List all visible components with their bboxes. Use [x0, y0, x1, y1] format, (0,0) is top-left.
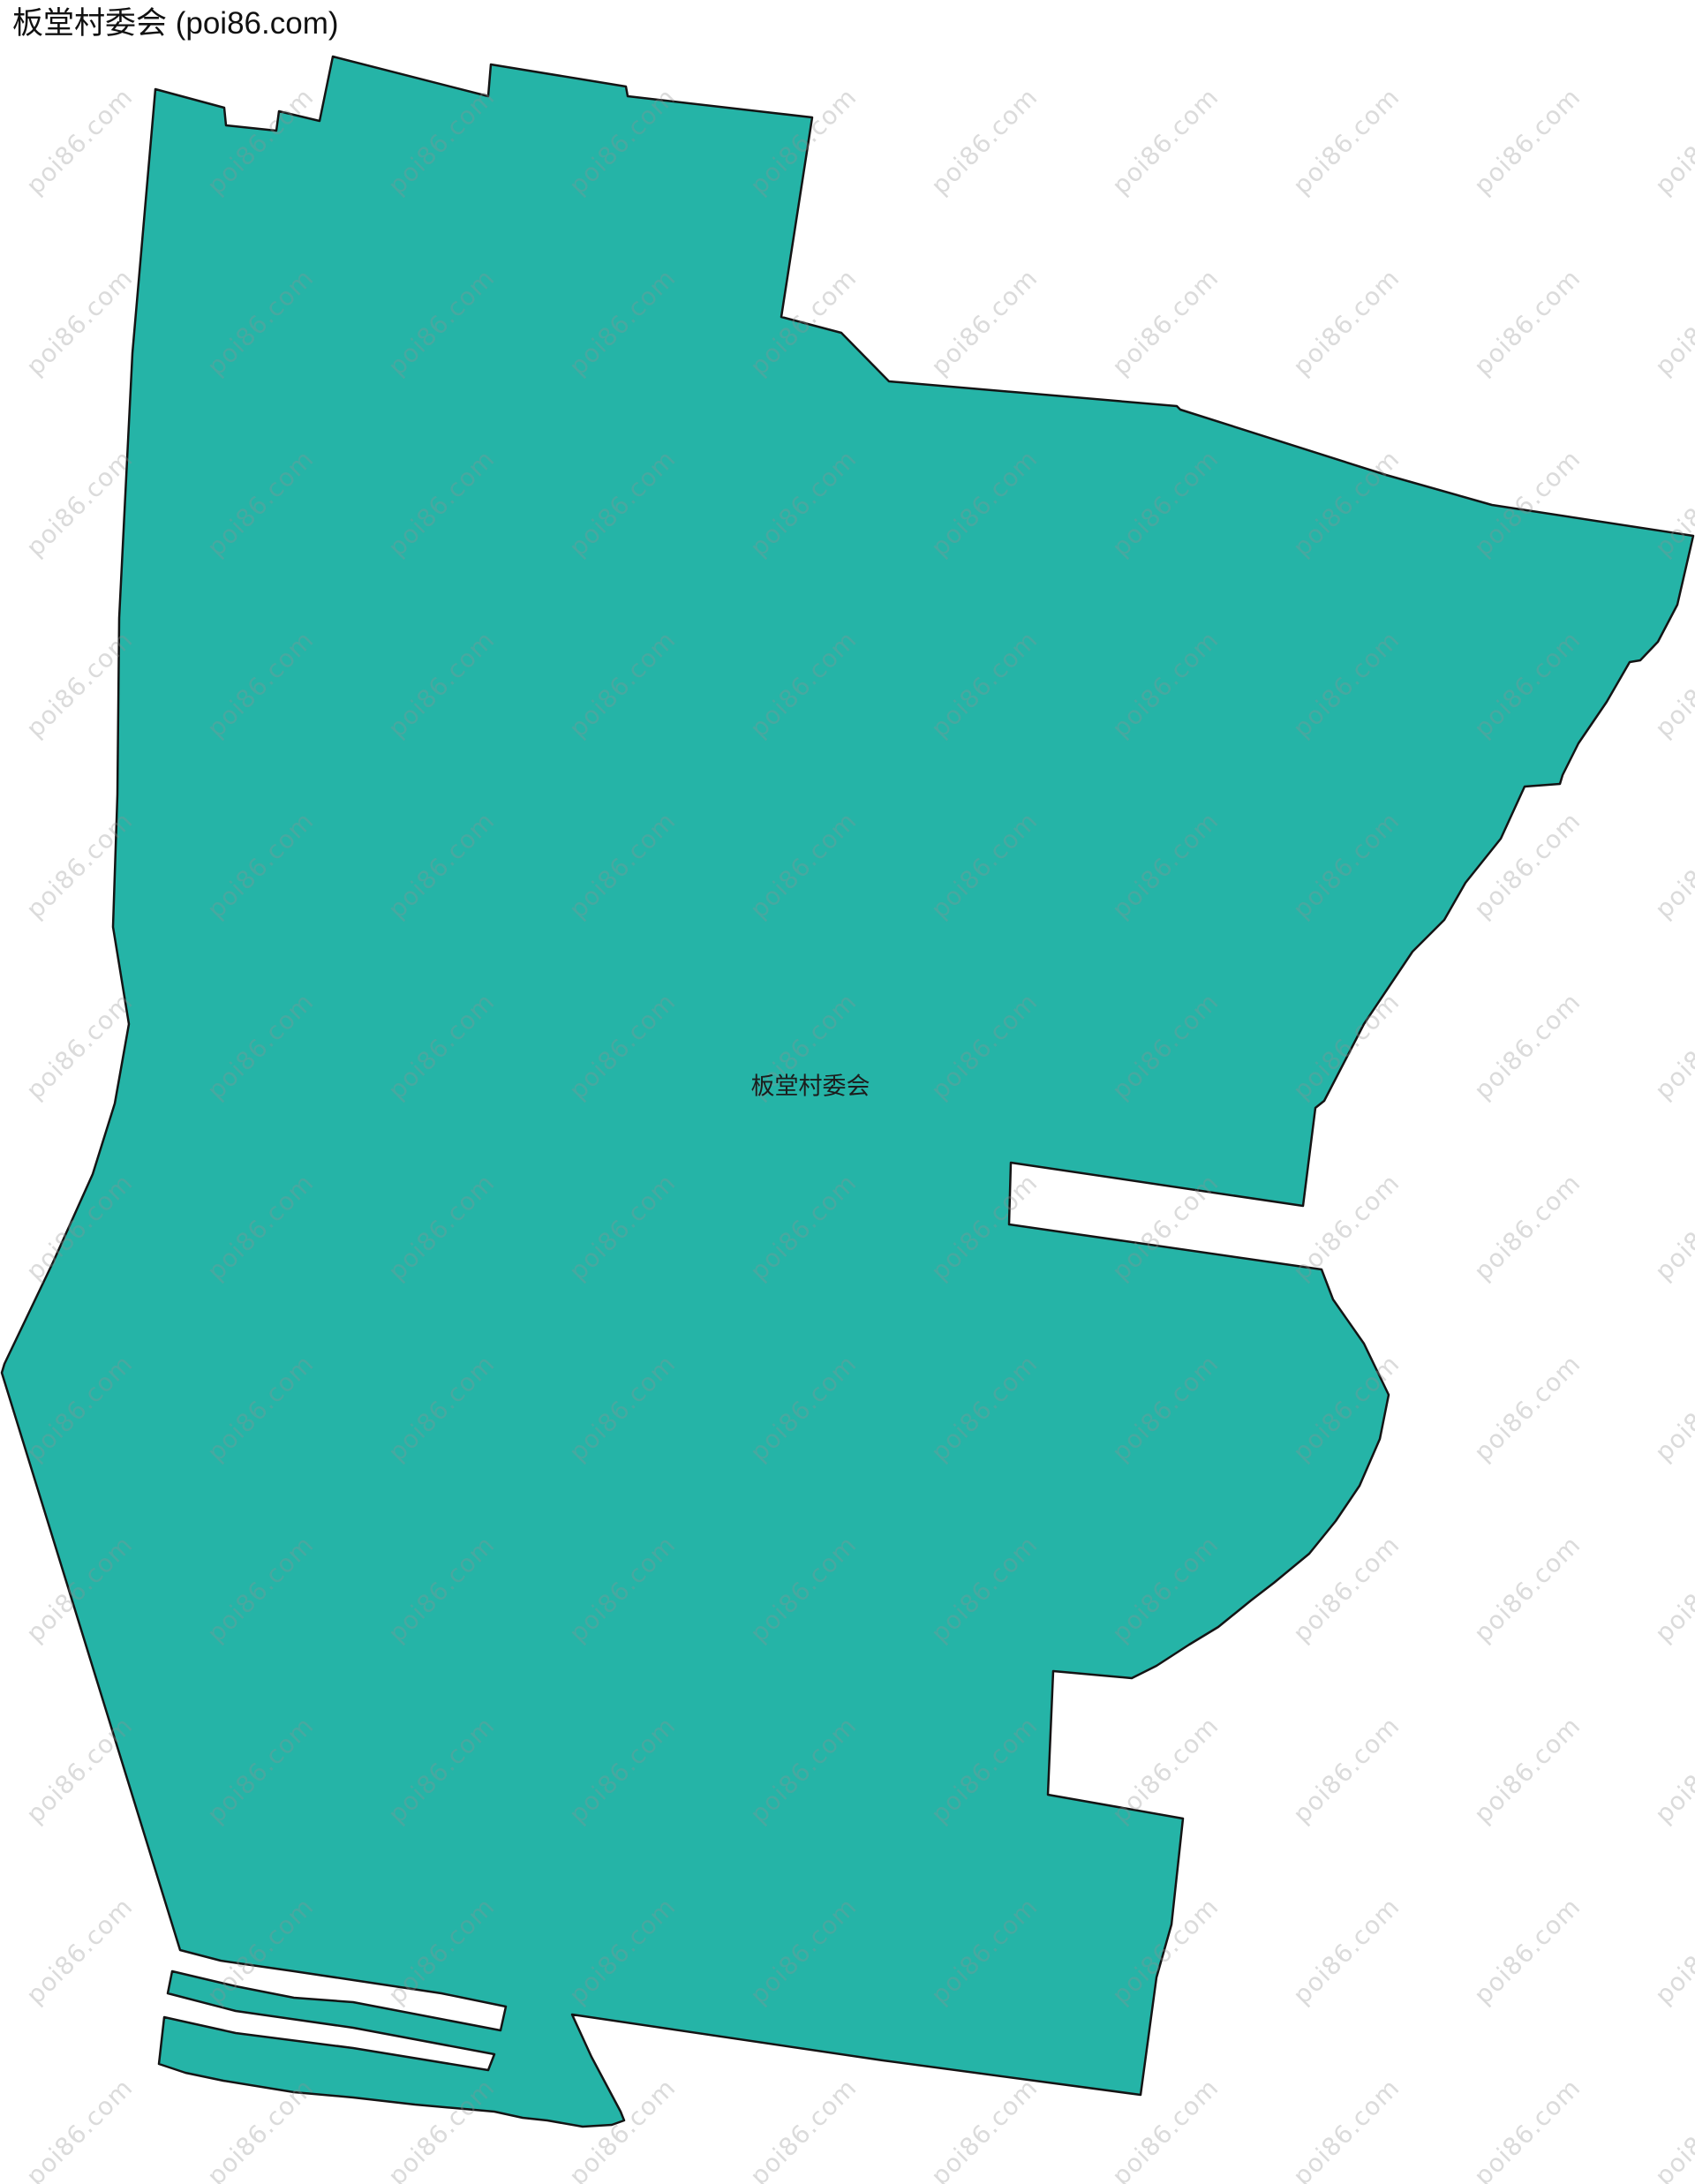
- page-title: 板堂村委会 (poi86.com): [12, 5, 339, 42]
- map-screenshot-page: poi86.compoi86.compoi86.compoi86.compoi8…: [0, 0, 1695, 2184]
- map-region-label: 板堂村委会: [751, 1067, 870, 1102]
